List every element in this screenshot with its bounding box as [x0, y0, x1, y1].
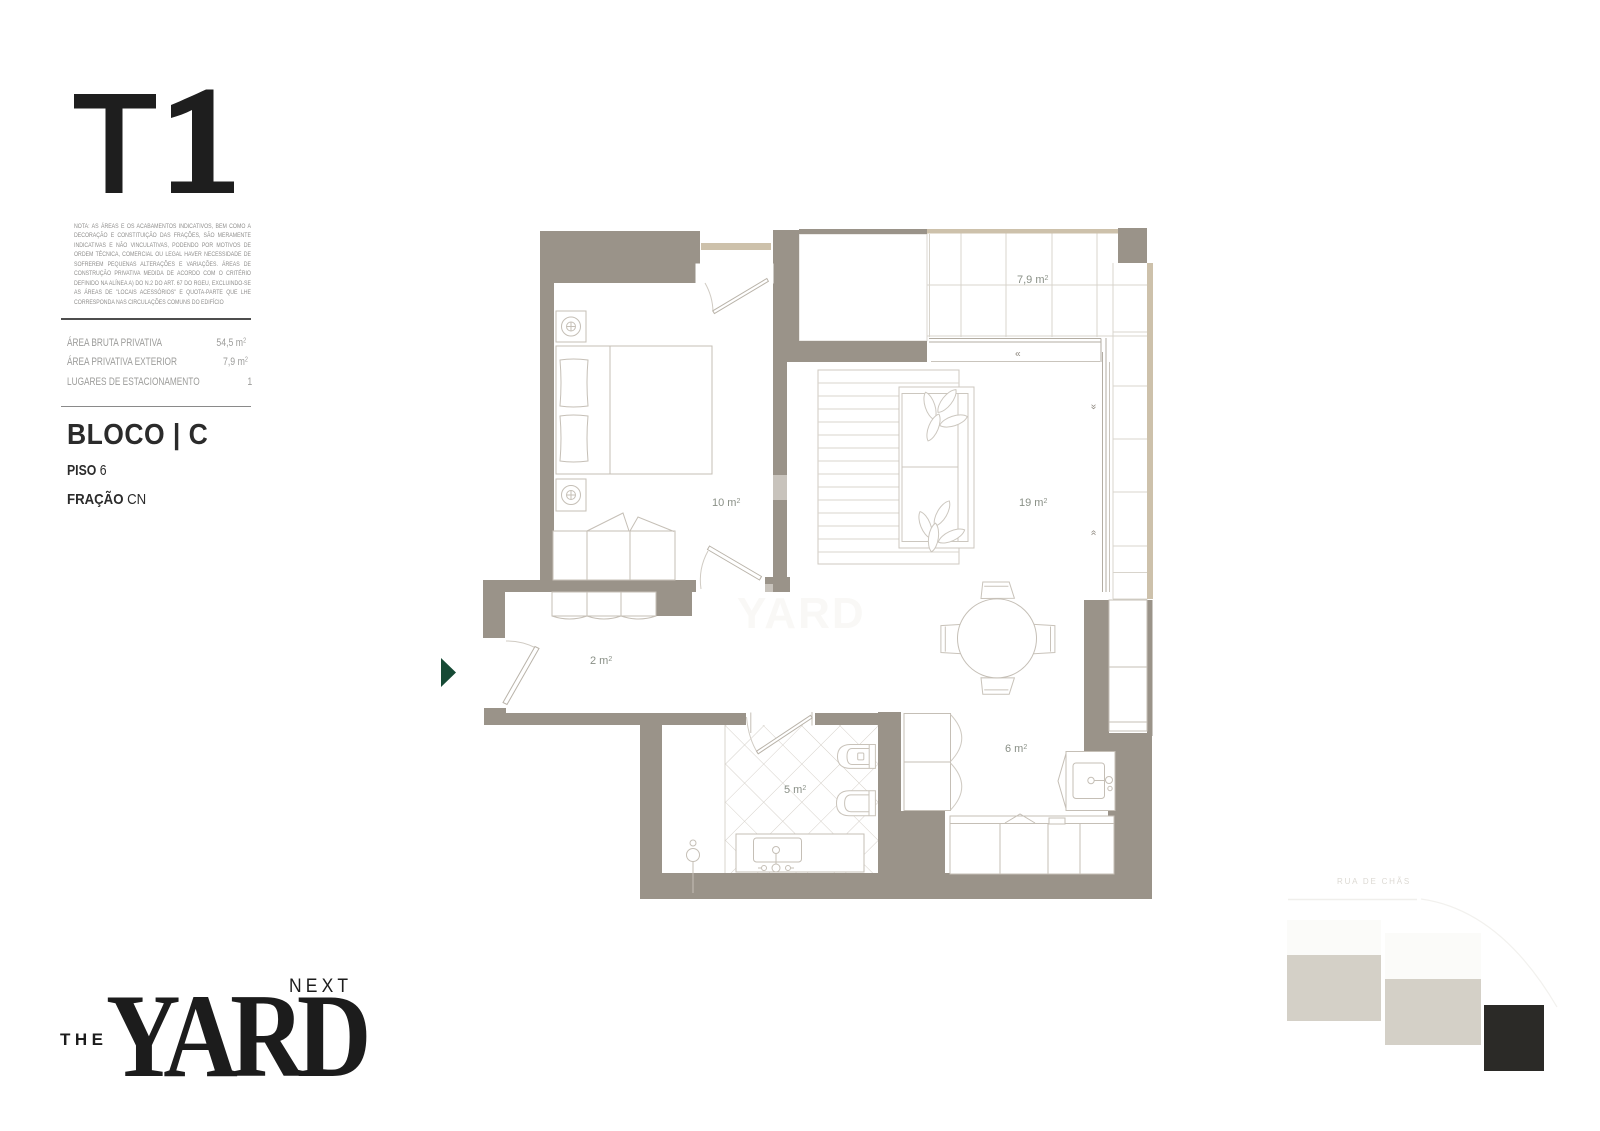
svg-text:«: « — [1088, 404, 1099, 410]
svg-text:7,9 m2: 7,9 m2 — [1017, 274, 1049, 286]
svg-text:YARD: YARD — [737, 589, 866, 638]
svg-text:2 m2: 2 m2 — [590, 655, 612, 667]
svg-text:10 m2: 10 m2 — [712, 497, 740, 509]
svg-text:19 m2: 19 m2 — [1019, 497, 1047, 509]
svg-text:6 m2: 6 m2 — [1005, 743, 1027, 755]
svg-text:»: » — [1088, 530, 1099, 536]
svg-text:«: « — [1015, 349, 1021, 360]
